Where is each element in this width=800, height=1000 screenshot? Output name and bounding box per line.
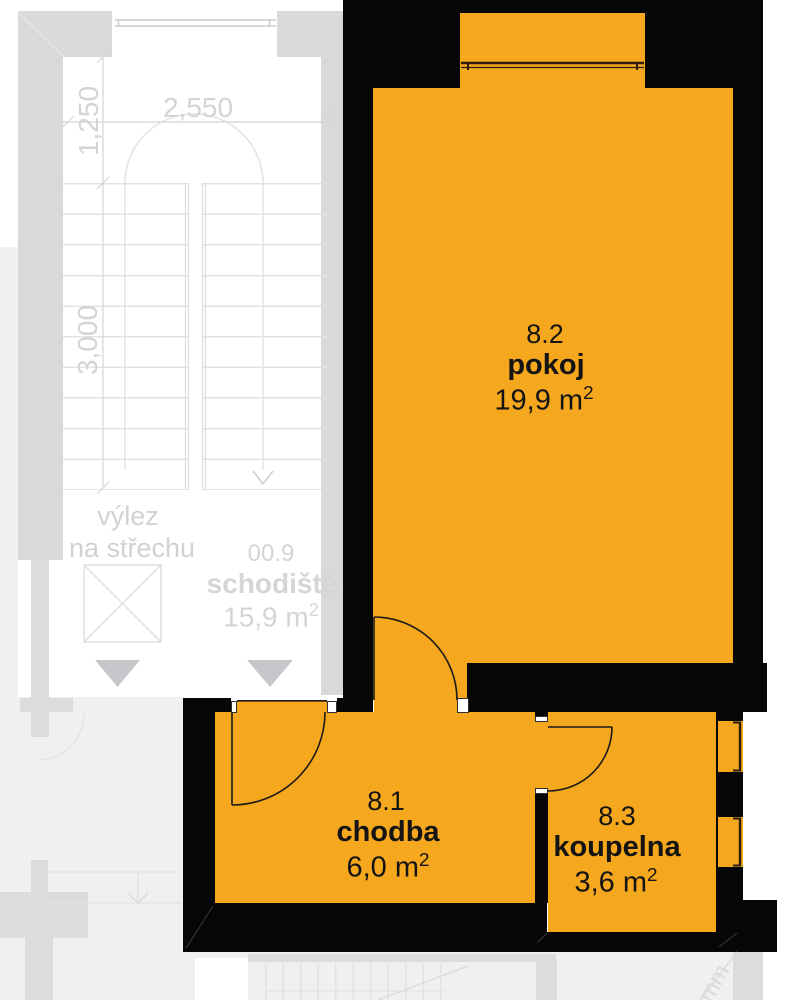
room-number-chodba: 8.1 [367,786,405,817]
doorway-chodba-koupelna [535,722,548,788]
room-number-koupelna: 8.3 [598,801,636,832]
room-name-chodba: chodba [336,816,439,849]
dimension-upper-height: 1,250 [73,86,105,156]
room-area-value: 3,6 m [574,867,647,899]
jamb-chodba-door-right [327,701,337,713]
jamb-koupelna-door-top [535,716,548,722]
background-wall-vbar2 [31,860,48,892]
stair-window-opening [112,11,277,57]
room-area-schodiste: 15,9 m2 [223,600,319,633]
background-wall-vbar3 [25,938,53,1000]
room-area-sup: 2 [583,382,593,403]
room-area-value: 19,9 m [494,385,583,417]
doorway-pokoj-chodba [374,698,457,713]
stair-wall-left [18,11,63,560]
jamb-koupelna-door-bottom [535,788,548,794]
floor-plan: 8.2 pokoj 19,9 m2 8.1 chodba 6,0 m2 8.3 … [0,0,800,1000]
room-area-value: 6,0 m [346,852,419,884]
dimension-lower-height: 3,000 [72,305,104,375]
background-wall-bar [536,962,557,1000]
wall-pokoj-koupelna [467,663,733,712]
wall-right [733,0,763,712]
background-gap [195,958,248,1000]
room-name-pokoj: pokoj [507,349,584,382]
wall-above-window-bay [460,0,645,13]
background-area-left [0,247,18,1000]
wall-bottom-right-corner [743,900,777,952]
room-area-chodba: 6,0 m2 [346,849,429,885]
wall-right-extension [733,663,767,712]
room-pokoj-lower [373,663,467,700]
wall-chodba-top-right [337,698,373,713]
roof-hatch-label-line2: na střechu [69,533,195,564]
background-wall-right [733,952,763,1000]
room-area-koupelna: 3,6 m2 [574,864,657,900]
jamb-chodba-door-left [231,701,237,713]
window-koupelna-2 [718,817,743,867]
wall-bottom [183,903,547,952]
room-number-pokoj: 8.2 [526,319,564,350]
wall-left [343,0,373,713]
room-area-sup: 2 [419,849,429,870]
stair-center-strip [189,183,202,490]
background-wall-block [0,892,88,938]
dimension-top-width: 2,550 [163,92,233,124]
room-name-koupelna: koupelna [553,831,680,864]
roof-hatch-label-line1: výlez [97,501,159,532]
window-bay-pokoj [460,13,645,88]
jamb-pokoj-door [457,698,469,713]
room-name-schodiste: schodiště [207,568,338,600]
doorway-chodba-schodiste [237,700,327,712]
room-area-sup: 2 [647,864,657,885]
room-area-pokoj: 19,9 m2 [494,382,593,418]
background-wall-crossbar [20,698,73,712]
window-koupelna-1 [718,721,743,772]
background-wall-band [248,954,556,962]
room-number-schodiste: 00.9 [248,540,295,568]
background-stair-grid [265,963,445,1000]
room-area-value: 15,9 m [223,601,309,632]
room-area-sup: 2 [309,600,319,620]
